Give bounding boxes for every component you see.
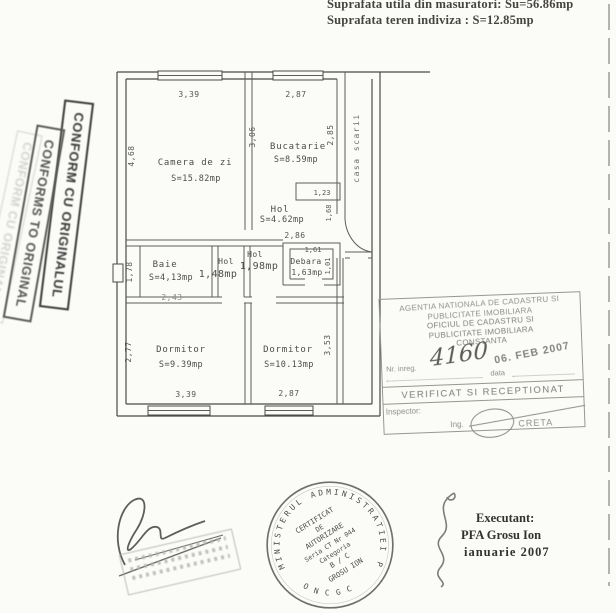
date-dotted-line	[512, 373, 574, 376]
inspector-signature-oval	[468, 405, 516, 440]
dim-camera-width: 3,39	[178, 90, 199, 99]
room-hol-name: Hol	[271, 205, 290, 215]
date-label: data	[490, 368, 505, 378]
registration-row: Nr. inreg. 4160 data 06. FEB 2007	[381, 343, 582, 387]
stairwell-label: casa scarii	[352, 113, 361, 182]
round-stamp-center: CERTIFICAT DE AUTORIZARE Seria CT Nr 044…	[287, 501, 373, 590]
round-stamp-bottom-text: ONCGC	[302, 581, 355, 597]
executant-label: Executant:	[476, 510, 550, 527]
reg-dotted-line	[387, 376, 483, 381]
ocpi-registration-stamp: AGENTIA NATIONALA DE CADASTRU SI PUBLICI…	[378, 291, 585, 435]
svg-text:ONCGC: ONCGC	[302, 581, 355, 597]
dim-baie-height: 1,78	[125, 261, 134, 282]
inspector-name: CRETA	[518, 417, 553, 428]
room-dormitor2-name: Dormitor	[263, 345, 313, 355]
room-bucatarie-name: Bucatarie	[270, 142, 326, 152]
room-baie-area: S=4,13mp	[149, 273, 193, 283]
inspector-title: Ing.	[450, 419, 464, 429]
room-baie-name: Baie	[153, 260, 178, 270]
room-bucatarie-area: S=8.59mp	[274, 155, 318, 165]
executant-block: Executant: PFA Grosu Ion ianuarie 2007	[461, 510, 550, 561]
dim-dormitor1-height: 2,77	[124, 341, 133, 362]
dim-hol-height: 1,68	[325, 205, 333, 222]
inspector-label: Inspector:	[386, 406, 421, 416]
dim-dormitor2-height: 3,53	[323, 334, 332, 355]
registration-number-label: Nr. inreg.	[386, 363, 417, 373]
dim-camera-height: 4,68	[127, 145, 136, 166]
room-hol148-name: Hol	[218, 257, 234, 266]
room-hol198-name: Hol	[247, 250, 263, 259]
room-camera-name: Camera de zi	[158, 158, 233, 168]
ministry-round-stamp: MINISTERUL ADMINISTRATIEI PUBLICE ONCGC …	[262, 477, 398, 613]
dim-wall-height: 3,06	[248, 126, 257, 147]
room-hol198-area: 1,98mp	[240, 261, 279, 272]
scan-edge-line	[608, 4, 610, 586]
room-debara-area: 1,63mp	[291, 268, 322, 277]
dim-dormitor1-width: 3,39	[175, 390, 196, 399]
dim-hol-notch: 1,23	[314, 189, 331, 197]
dim-hol-width: 2,86	[284, 231, 305, 240]
room-dormitor1-area: S=9.39mp	[159, 360, 203, 370]
dim-baie-width: 2,43	[161, 293, 182, 302]
dim-dormitor2-width: 2,87	[278, 389, 299, 398]
room-hol-area: S=4.62mp	[260, 215, 304, 225]
executant-date: ianuarie 2007	[464, 544, 550, 561]
dim-bucatarie-width: 2,87	[285, 90, 306, 99]
executant-name: PFA Grosu Ion	[461, 527, 550, 544]
dim-debara-width: 1,61	[305, 246, 322, 254]
room-dormitor2-area: S=10.13mp	[264, 360, 314, 370]
room-debara-name: Debara	[290, 257, 321, 266]
room-dormitor1-name: Dormitor	[156, 345, 206, 355]
entrance-door-arc	[345, 214, 372, 252]
inspector-row: Inspector: Ing. CRETA	[383, 396, 584, 443]
dim-bucatarie-height: 2,85	[326, 124, 335, 145]
room-camera-area: S=15.82mp	[171, 174, 221, 184]
room-hol148-area: 1,48mp	[199, 269, 238, 280]
dim-debara-height: 1,01	[324, 258, 332, 275]
